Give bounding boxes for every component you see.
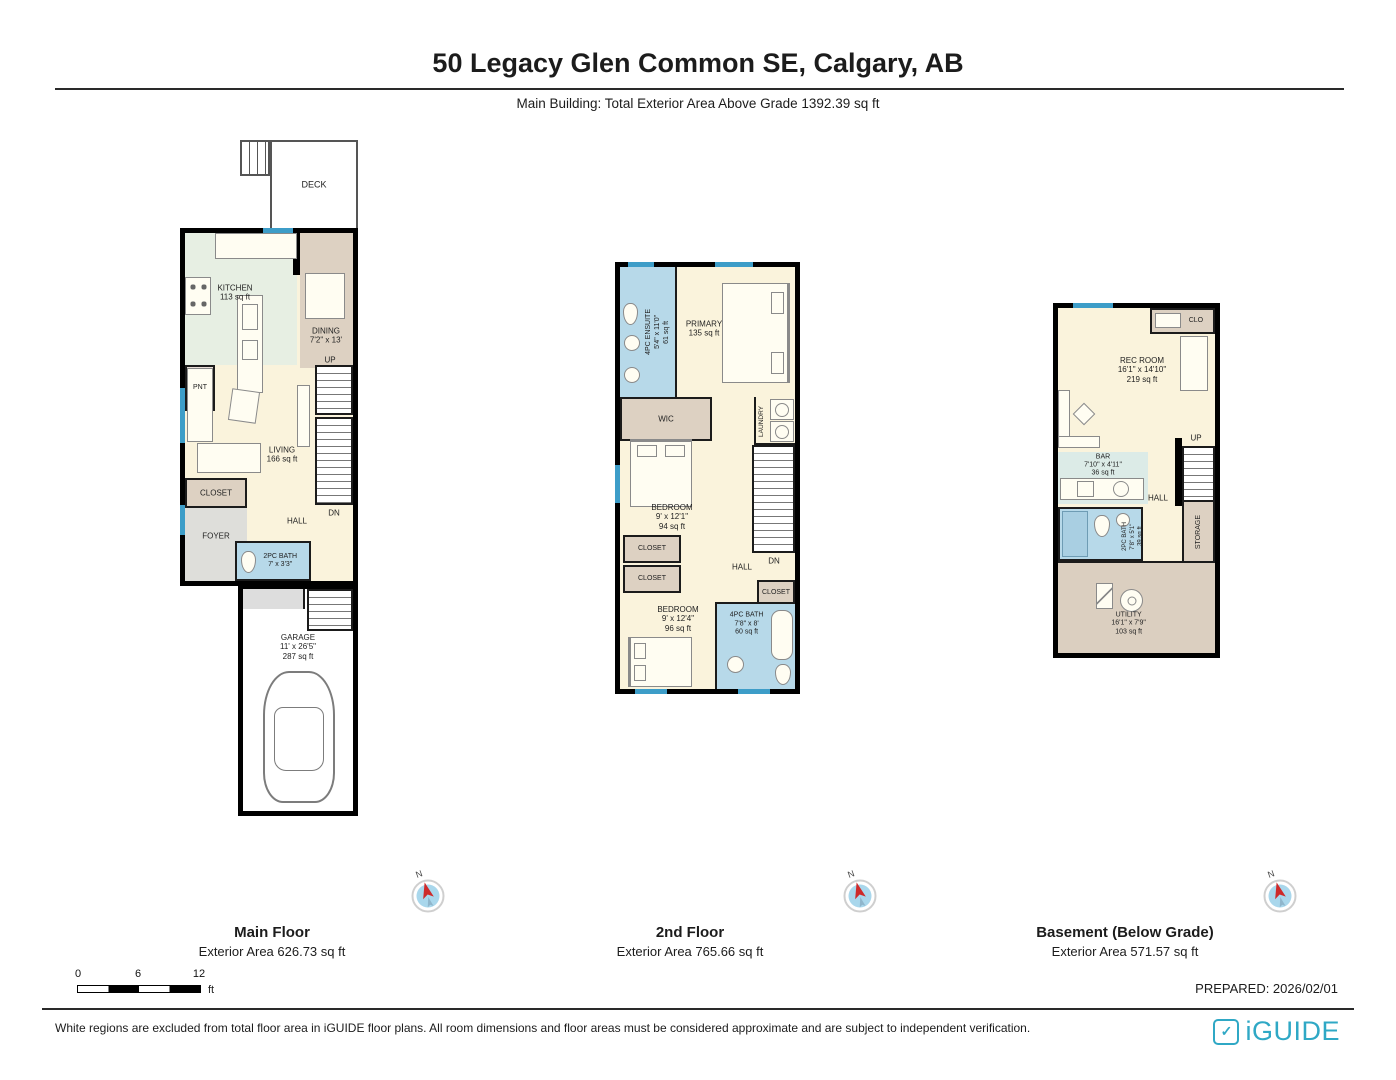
stairs-down-icon	[315, 417, 353, 505]
compass-icon: N	[838, 867, 882, 917]
caption-main-floor: Main Floor Exterior Area 626.73 sq ft	[199, 924, 346, 959]
window-icon	[180, 388, 185, 443]
room-label-dn: DN	[328, 508, 340, 517]
room-4pc-bath: 4PC BATH7'8" x 8'60 sq ft	[715, 602, 795, 689]
dining-table-icon	[305, 273, 345, 319]
room-label-dining: DINING7'2" x 13'	[310, 327, 342, 346]
floor-plan-main: KITCHEN113 sq ft DINING7'2" x 13' UP DN …	[180, 228, 358, 586]
iguide-logo-text: iGUIDE	[1245, 1016, 1340, 1047]
bathtub-icon	[771, 610, 793, 660]
room-label-bar: BAR7'10" x 4'11"36 sq ft	[1084, 453, 1122, 478]
stairs-up-icon	[1182, 446, 1215, 506]
garage-landing	[243, 589, 305, 609]
electrical-panel-icon	[1096, 583, 1113, 609]
stove-icon	[185, 277, 211, 315]
room-label-clo: CLO	[1189, 317, 1203, 325]
title-divider	[55, 88, 1344, 90]
scale-tick-6: 6	[135, 968, 141, 980]
room-label-wic: WIC	[658, 414, 674, 423]
toilet-icon	[241, 551, 256, 573]
room-deck: DECK	[270, 140, 358, 230]
kitchen-counter-icon	[215, 233, 297, 259]
room-closet-2: CLOSET	[623, 565, 681, 593]
wall-stub	[1175, 438, 1182, 506]
svg-text:N: N	[1266, 868, 1276, 880]
room-wic: WIC	[620, 397, 712, 441]
room-label-closet-2: CLOSET	[638, 575, 666, 583]
floor-name: Main Floor	[199, 924, 346, 941]
sink-icon	[242, 304, 258, 330]
room-label-utility: UTILITY16'1" x 7'9"103 sq ft	[1111, 612, 1146, 637]
iguide-logo: ✓ iGUIDE	[1213, 1016, 1340, 1047]
room-closet: CLOSET	[185, 478, 247, 508]
pillow-icon	[665, 445, 685, 457]
room-label-pantry: PNT	[193, 384, 207, 392]
room-label-hall: HALL	[287, 516, 307, 525]
room-label-closet: CLOSET	[200, 488, 232, 497]
floor-plan-second: 4PC ENSUITE5'4" x 11'0"61 sq ft PRIMARY1…	[615, 262, 800, 694]
compass-icon: N	[406, 867, 450, 917]
room-bar: BAR7'10" x 4'11"36 sq ft	[1058, 452, 1148, 504]
floor-area: Exterior Area 765.66 sq ft	[617, 944, 764, 959]
sofa-icon	[187, 368, 213, 442]
footer-disclaimer: White regions are excluded from total fl…	[55, 1021, 1030, 1035]
window-icon	[715, 262, 753, 267]
bed-icon	[628, 637, 692, 687]
floor-plan-page: 50 Legacy Glen Common SE, Calgary, AB Ma…	[0, 0, 1396, 1080]
window-icon	[635, 689, 667, 694]
prepared-date: PREPARED: 2026/02/01	[1195, 981, 1338, 996]
shower-icon	[1062, 511, 1088, 557]
caption-second-floor: 2nd Floor Exterior Area 765.66 sq ft	[617, 924, 764, 959]
room-closet-1: CLOSET	[623, 535, 681, 563]
room-label-garage: GARAGE11' x 26'5"287 sq ft	[280, 633, 316, 661]
scale-tick-12: 12	[193, 968, 205, 980]
pillow-icon	[771, 292, 784, 314]
room-label-bedroom2: BEDROOM9' x 12'4"96 sq ft	[657, 605, 698, 633]
room-label-4pc-bath: 4PC BATH7'8" x 8'60 sq ft	[730, 612, 764, 637]
room-label-hall2: HALL	[732, 562, 752, 571]
desk-icon	[1058, 436, 1100, 448]
bar-fridge-icon	[1077, 481, 1094, 497]
bed-icon	[722, 283, 790, 383]
shelf-icon	[1155, 313, 1181, 328]
room-laundry: LAUNDRY	[754, 397, 795, 445]
room-label-closet-3: CLOSET	[762, 589, 790, 597]
room-label-rec: REC ROOM16'1" x 14'10"219 sq ft	[1118, 356, 1166, 384]
floor-area: Exterior Area 571.57 sq ft	[1036, 944, 1214, 959]
cooktop-icon	[242, 340, 258, 360]
floor-name: Basement (Below Grade)	[1036, 924, 1214, 941]
room-label-hall-basement: HALL	[1148, 493, 1168, 502]
caption-basement: Basement (Below Grade) Exterior Area 571…	[1036, 924, 1214, 959]
scale-bar	[77, 985, 201, 993]
svg-text:N: N	[846, 868, 856, 880]
bed-icon	[630, 439, 692, 507]
window-icon	[180, 505, 185, 535]
stairs-up-icon	[315, 365, 353, 415]
stairs-down-icon	[752, 445, 795, 553]
room-storage: STORAGE	[1182, 500, 1215, 564]
pillow-icon	[634, 643, 646, 659]
pillow-icon	[637, 445, 657, 457]
floor-plan-garage: GARAGE11' x 26'5"287 sq ft	[238, 584, 358, 816]
room-label-living: LIVING166 sq ft	[267, 446, 298, 465]
room-2pc-bath-basement: 2PC BATH7'8" x 5'1"39 sq ft	[1058, 507, 1143, 561]
scale-tick-0: 0	[75, 968, 81, 980]
svg-text:N: N	[414, 868, 424, 880]
room-label-bedroom1: BEDROOM9' x 12'1"94 sq ft	[651, 503, 692, 531]
room-label-primary: PRIMARY135 sq ft	[686, 320, 722, 339]
toilet-icon	[623, 303, 638, 325]
water-heater-icon	[1120, 589, 1143, 612]
deck-stairs-icon	[240, 140, 270, 176]
toilet-icon	[1094, 515, 1110, 537]
footer-divider	[42, 1008, 1354, 1010]
room-label-kitchen: KITCHEN113 sq ft	[217, 284, 252, 303]
room-label-deck: DECK	[301, 180, 326, 191]
sink-icon	[727, 656, 744, 673]
chair-icon	[1073, 403, 1096, 426]
compass-icon: N	[1258, 867, 1302, 917]
floor-area: Exterior Area 626.73 sq ft	[199, 944, 346, 959]
room-clo: CLO	[1150, 308, 1215, 334]
sink-icon	[624, 367, 640, 383]
room-label-dn2: DN	[768, 556, 780, 565]
room-label-closet-1: CLOSET	[638, 545, 666, 553]
page-title: 50 Legacy Glen Common SE, Calgary, AB	[0, 48, 1396, 79]
car-icon	[263, 671, 335, 803]
dryer-icon	[770, 421, 794, 442]
garage-stairs-icon	[307, 589, 353, 631]
page-subtitle: Main Building: Total Exterior Area Above…	[0, 96, 1396, 111]
room-label-2pc-bath: 2PC BATH7' x 3'3"	[263, 553, 297, 570]
washer-icon	[770, 399, 794, 420]
tv-console-icon	[297, 385, 310, 447]
room-label-2pc-bath-basement: 2PC BATH7'8" x 5'1"39 sq ft	[1126, 515, 1142, 557]
room-label-storage: STORAGE	[1184, 502, 1213, 562]
room-label-up: UP	[324, 355, 335, 364]
water-heater-core	[1127, 596, 1136, 605]
sofa-icon	[197, 443, 261, 473]
window-icon	[1073, 303, 1113, 308]
room-label-ensuite: 4PC ENSUITE5'4" x 11'0"61 sq ft	[642, 275, 674, 389]
bar-sink-icon	[1113, 481, 1129, 497]
room-ensuite: 4PC ENSUITE5'4" x 11'0"61 sq ft	[620, 267, 677, 397]
room-label-up-basement: UP	[1190, 433, 1201, 442]
window-icon	[615, 465, 620, 503]
room-utility: UTILITY16'1" x 7'9"103 sq ft	[1058, 561, 1215, 653]
room-label-foyer: FOYER	[202, 531, 230, 540]
sink-icon	[624, 335, 640, 351]
sofa-icon	[1180, 336, 1208, 391]
car-cabin	[274, 707, 324, 771]
window-icon	[263, 228, 293, 233]
room-2pc-bath: 2PC BATH7' x 3'3"	[235, 541, 311, 581]
armchair-icon	[228, 388, 260, 424]
iguide-logo-icon: ✓	[1213, 1019, 1239, 1045]
scale-unit: ft	[208, 984, 214, 996]
desk-icon	[1058, 390, 1070, 442]
window-icon	[628, 262, 654, 267]
floor-plan-basement: CLO REC ROOM16'1" x 14'10"219 sq ft UP B…	[1053, 303, 1220, 658]
pillow-icon	[634, 665, 646, 681]
floor-name: 2nd Floor	[617, 924, 764, 941]
pillow-icon	[771, 352, 784, 374]
kitchen-island-icon	[237, 295, 263, 393]
window-icon	[738, 689, 770, 694]
bar-counter-icon	[1060, 478, 1144, 500]
room-label-laundry: LAUNDRY	[756, 399, 769, 443]
toilet-icon	[775, 664, 791, 685]
